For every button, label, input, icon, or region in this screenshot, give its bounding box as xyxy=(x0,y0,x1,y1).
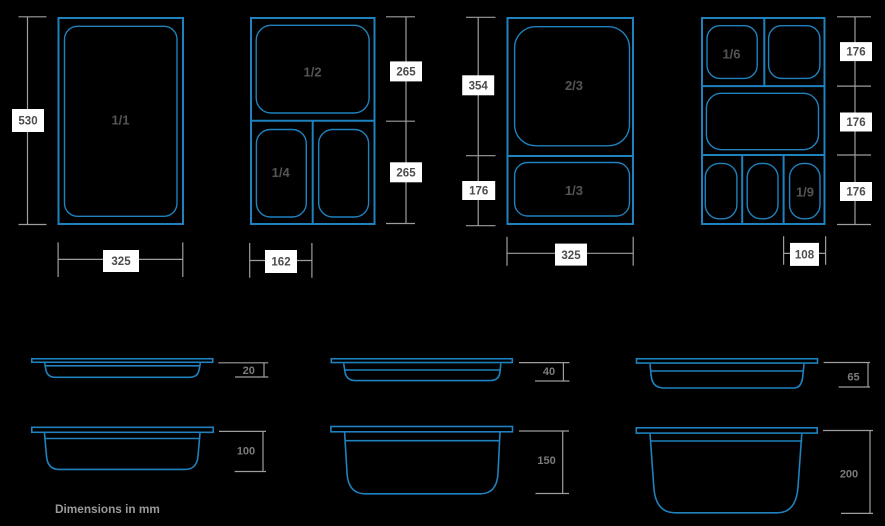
svg-text:176: 176 xyxy=(469,186,488,198)
svg-text:162: 162 xyxy=(271,257,290,269)
svg-text:265: 265 xyxy=(396,67,416,79)
svg-text:1/9: 1/9 xyxy=(796,184,814,199)
svg-text:200: 200 xyxy=(840,468,858,480)
svg-text:65: 65 xyxy=(847,372,859,384)
svg-text:1/2: 1/2 xyxy=(304,65,322,80)
svg-text:1/6: 1/6 xyxy=(722,47,740,62)
svg-text:Dimensions in mm: Dimensions in mm xyxy=(55,502,160,516)
svg-text:176: 176 xyxy=(846,117,865,129)
svg-text:108: 108 xyxy=(795,249,815,261)
svg-text:325: 325 xyxy=(561,250,581,262)
svg-text:20: 20 xyxy=(243,365,255,377)
svg-text:176: 176 xyxy=(846,187,865,199)
svg-text:354: 354 xyxy=(469,81,489,93)
svg-text:530: 530 xyxy=(18,116,37,128)
svg-text:1/4: 1/4 xyxy=(272,165,291,180)
svg-text:40: 40 xyxy=(543,366,555,378)
svg-text:176: 176 xyxy=(846,47,865,59)
svg-text:325: 325 xyxy=(111,256,131,268)
svg-text:1/1: 1/1 xyxy=(111,113,129,128)
svg-text:150: 150 xyxy=(537,455,555,467)
svg-text:100: 100 xyxy=(237,446,255,458)
svg-text:1/3: 1/3 xyxy=(565,183,583,198)
svg-text:265: 265 xyxy=(396,168,416,180)
svg-text:2/3: 2/3 xyxy=(565,78,583,93)
